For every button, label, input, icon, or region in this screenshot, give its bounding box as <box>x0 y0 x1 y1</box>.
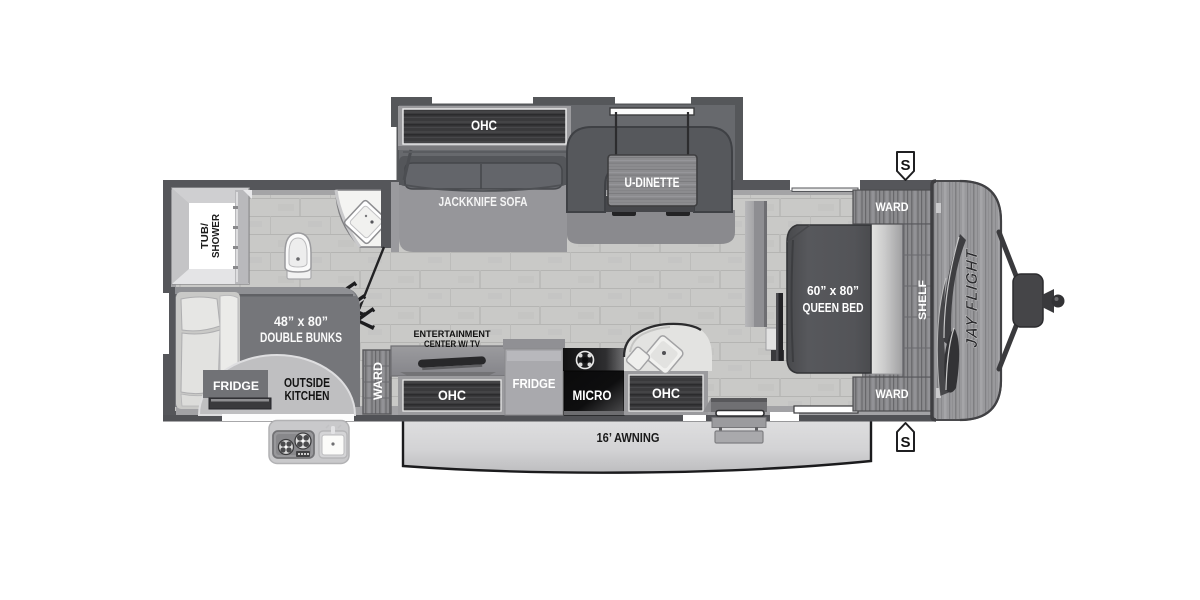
svg-text:JAY FLIGHT: JAY FLIGHT <box>964 248 981 349</box>
svg-text:OHC: OHC <box>471 118 497 133</box>
svg-text:S: S <box>900 157 910 174</box>
svg-text:MICRO: MICRO <box>573 388 612 403</box>
svg-text:QUEEN BED: QUEEN BED <box>803 301 864 315</box>
svg-text:JACKKNIFE SOFA: JACKKNIFE SOFA <box>439 194 528 209</box>
svg-text:FRIDGE: FRIDGE <box>213 381 259 393</box>
svg-text:60” x 80”: 60” x 80” <box>807 284 859 298</box>
svg-text:DOUBLE BUNKS: DOUBLE BUNKS <box>260 330 342 345</box>
svg-text:KITCHEN: KITCHEN <box>285 388 330 403</box>
svg-text:S: S <box>900 434 910 451</box>
svg-text:48” x 80”: 48” x 80” <box>274 314 328 329</box>
svg-text:WARD: WARD <box>876 200 909 214</box>
svg-text:OHC: OHC <box>652 386 680 401</box>
svg-text:SHOWER: SHOWER <box>211 213 222 258</box>
svg-text:U-DINETTE: U-DINETTE <box>625 175 680 190</box>
svg-text:SHELF: SHELF <box>917 280 929 320</box>
svg-text:OHC: OHC <box>438 388 466 403</box>
svg-text:16’ AWNING: 16’ AWNING <box>597 431 660 445</box>
svg-text:TUB/: TUB/ <box>200 223 211 249</box>
svg-text:FRIDGE: FRIDGE <box>513 377 556 391</box>
svg-text:CENTER W/ TV: CENTER W/ TV <box>424 339 481 350</box>
svg-text:WARD: WARD <box>876 387 909 401</box>
svg-text:WARD: WARD <box>371 362 385 400</box>
